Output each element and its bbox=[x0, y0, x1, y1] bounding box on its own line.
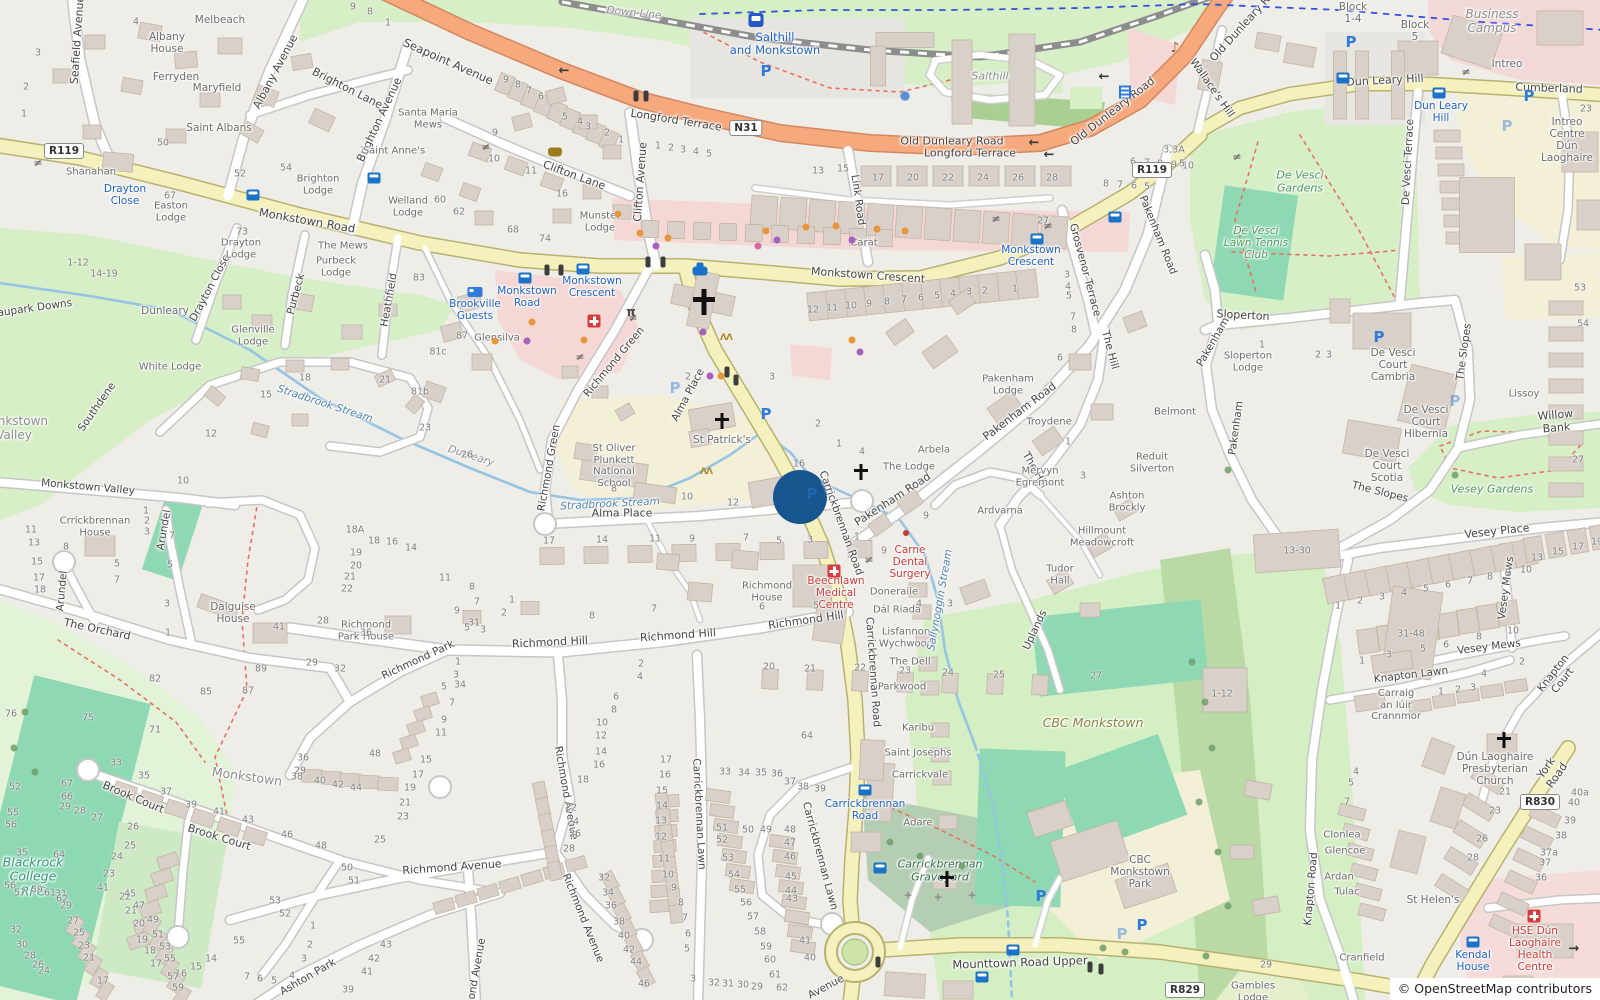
map-layers bbox=[0, 0, 1600, 1000]
building bbox=[713, 818, 738, 833]
building bbox=[916, 633, 934, 647]
building bbox=[385, 616, 411, 634]
building bbox=[1011, 213, 1039, 247]
building bbox=[1521, 826, 1554, 850]
building bbox=[812, 600, 847, 644]
building bbox=[1283, 43, 1316, 68]
building bbox=[806, 670, 823, 691]
building bbox=[499, 876, 522, 893]
building bbox=[1434, 130, 1460, 142]
building bbox=[1040, 215, 1068, 249]
building bbox=[302, 769, 323, 783]
road-clifton-avenue bbox=[630, 113, 656, 266]
building bbox=[1525, 244, 1561, 280]
map-attribution: © OpenStreetMap contributors bbox=[1390, 978, 1600, 1000]
building bbox=[1549, 353, 1583, 367]
building bbox=[667, 221, 685, 239]
building bbox=[1436, 147, 1462, 159]
building bbox=[121, 77, 143, 94]
building bbox=[823, 227, 841, 245]
building bbox=[613, 205, 631, 219]
route-badge-r119: R119 bbox=[1132, 162, 1172, 178]
building bbox=[540, 547, 564, 564]
building bbox=[1390, 830, 1426, 874]
building bbox=[378, 777, 399, 791]
building bbox=[919, 657, 937, 671]
building bbox=[1198, 59, 1223, 92]
building bbox=[1537, 11, 1583, 45]
building bbox=[922, 335, 958, 369]
building bbox=[793, 565, 831, 607]
building bbox=[772, 849, 797, 864]
building bbox=[669, 904, 683, 923]
building bbox=[393, 748, 412, 764]
building bbox=[909, 583, 927, 597]
building bbox=[1549, 405, 1583, 419]
building bbox=[933, 875, 957, 889]
building bbox=[321, 771, 342, 785]
building bbox=[521, 602, 539, 615]
area-rect bbox=[1070, 87, 1102, 109]
road-casing-richmond-hill bbox=[290, 612, 848, 652]
building bbox=[953, 209, 981, 243]
building bbox=[705, 788, 730, 803]
building bbox=[1016, 269, 1039, 299]
building bbox=[603, 145, 621, 159]
building bbox=[933, 771, 951, 785]
building bbox=[253, 623, 287, 643]
building bbox=[1549, 327, 1583, 341]
building bbox=[851, 671, 868, 692]
building bbox=[166, 129, 186, 143]
building bbox=[331, 358, 349, 370]
building bbox=[851, 832, 881, 852]
building bbox=[775, 864, 800, 879]
building bbox=[1330, 299, 1350, 323]
building bbox=[896, 672, 913, 693]
building bbox=[1480, 684, 1503, 699]
building bbox=[1476, 604, 1499, 631]
building bbox=[986, 674, 1003, 695]
building bbox=[562, 366, 578, 378]
building bbox=[943, 981, 973, 999]
building bbox=[342, 325, 362, 339]
osm-attribution-link[interactable]: © OpenStreetMap contributors bbox=[1398, 981, 1592, 996]
building bbox=[85, 536, 115, 556]
building bbox=[1456, 689, 1479, 704]
building bbox=[750, 195, 778, 229]
building bbox=[565, 855, 588, 872]
building bbox=[286, 360, 304, 372]
building bbox=[1513, 848, 1546, 872]
building bbox=[1589, 524, 1600, 551]
building bbox=[292, 414, 308, 426]
building bbox=[1438, 164, 1464, 176]
building bbox=[291, 53, 313, 70]
building bbox=[656, 553, 679, 571]
building bbox=[1549, 457, 1583, 471]
building bbox=[340, 773, 361, 787]
building bbox=[457, 291, 482, 312]
building bbox=[1422, 738, 1455, 774]
building bbox=[848, 540, 872, 557]
building bbox=[761, 669, 778, 690]
building bbox=[1460, 178, 1515, 253]
building bbox=[290, 292, 314, 312]
building bbox=[1523, 536, 1545, 563]
building bbox=[790, 939, 815, 954]
building bbox=[1392, 51, 1405, 119]
building bbox=[861, 166, 891, 186]
building bbox=[592, 386, 608, 398]
building bbox=[53, 69, 71, 83]
building bbox=[472, 354, 492, 370]
building bbox=[1203, 668, 1247, 712]
building bbox=[1444, 847, 1479, 876]
building bbox=[197, 594, 239, 621]
route-badge-r830: R830 bbox=[1520, 794, 1560, 810]
building bbox=[969, 166, 999, 186]
building bbox=[778, 879, 803, 894]
building bbox=[731, 550, 758, 570]
building bbox=[1005, 166, 1035, 186]
building bbox=[1408, 699, 1431, 714]
building bbox=[1255, 32, 1281, 52]
building bbox=[1549, 301, 1583, 315]
building bbox=[218, 38, 242, 54]
building bbox=[1009, 34, 1035, 126]
cul-de-sac bbox=[534, 513, 556, 535]
building bbox=[1545, 532, 1567, 559]
building bbox=[952, 40, 972, 124]
building bbox=[421, 162, 443, 181]
building bbox=[729, 878, 754, 893]
building bbox=[982, 211, 1010, 245]
building bbox=[781, 894, 806, 909]
building bbox=[933, 166, 963, 186]
building bbox=[960, 579, 991, 605]
building bbox=[628, 545, 652, 562]
building bbox=[463, 611, 481, 624]
building bbox=[689, 428, 711, 447]
building bbox=[687, 582, 712, 602]
building bbox=[1031, 675, 1048, 696]
building bbox=[1069, 354, 1091, 370]
building bbox=[886, 319, 915, 346]
building bbox=[421, 692, 440, 708]
building bbox=[797, 226, 815, 244]
building bbox=[931, 748, 949, 762]
building bbox=[521, 869, 544, 886]
building bbox=[407, 720, 426, 736]
cul-de-sac bbox=[167, 926, 189, 948]
building bbox=[174, 51, 197, 69]
cul-de-sac bbox=[77, 759, 99, 781]
building bbox=[1435, 874, 1470, 903]
cul-de-sac bbox=[53, 551, 75, 573]
building bbox=[1562, 132, 1598, 172]
route-badge-r119: R119 bbox=[44, 143, 84, 159]
building bbox=[1504, 679, 1527, 694]
building bbox=[511, 113, 532, 131]
building bbox=[359, 775, 380, 789]
map-canvas[interactable]: Seapoint AvenueLongford TerraceOld Dunle… bbox=[0, 0, 1600, 1000]
route-badge-r829: R829 bbox=[1165, 982, 1205, 998]
building bbox=[709, 803, 734, 818]
building bbox=[745, 224, 763, 242]
building bbox=[1496, 600, 1519, 627]
building bbox=[1398, 364, 1459, 432]
building bbox=[414, 706, 433, 722]
building bbox=[545, 87, 566, 105]
building bbox=[760, 542, 784, 559]
building bbox=[468, 142, 492, 162]
building bbox=[1113, 499, 1137, 521]
building bbox=[849, 228, 867, 246]
building bbox=[1080, 603, 1100, 617]
building bbox=[769, 834, 794, 849]
area-shops-small bbox=[790, 344, 832, 380]
building bbox=[1549, 483, 1583, 497]
building bbox=[1456, 608, 1479, 635]
building bbox=[875, 229, 893, 247]
building bbox=[895, 205, 923, 239]
building bbox=[583, 185, 601, 199]
building bbox=[574, 443, 598, 462]
building bbox=[921, 681, 939, 695]
building bbox=[725, 863, 750, 878]
building bbox=[1577, 200, 1600, 230]
building bbox=[83, 125, 101, 139]
building bbox=[1253, 529, 1340, 573]
building bbox=[1487, 734, 1517, 758]
building bbox=[440, 322, 463, 343]
building bbox=[871, 46, 886, 86]
building bbox=[1356, 51, 1369, 119]
building bbox=[1567, 528, 1589, 555]
building bbox=[931, 723, 949, 737]
building bbox=[913, 605, 931, 619]
building bbox=[719, 223, 737, 241]
building bbox=[379, 304, 397, 316]
building bbox=[102, 152, 133, 173]
building bbox=[540, 172, 564, 192]
building bbox=[859, 739, 885, 780]
building bbox=[1453, 820, 1488, 849]
building bbox=[1358, 903, 1386, 921]
building bbox=[584, 546, 608, 563]
cul-de-sac bbox=[429, 776, 451, 798]
building bbox=[504, 156, 528, 176]
building bbox=[1549, 431, 1583, 445]
building bbox=[1353, 313, 1411, 349]
building bbox=[897, 166, 927, 186]
building bbox=[641, 220, 659, 238]
building bbox=[1517, 924, 1573, 958]
location-marker[interactable] bbox=[773, 470, 827, 524]
building bbox=[400, 734, 419, 750]
building bbox=[1334, 51, 1347, 119]
building bbox=[309, 108, 336, 132]
building bbox=[876, 33, 934, 48]
building bbox=[1342, 420, 1401, 463]
building bbox=[1356, 628, 1379, 655]
building bbox=[939, 815, 957, 829]
building bbox=[579, 115, 597, 129]
building bbox=[200, 93, 220, 107]
building bbox=[1549, 379, 1583, 393]
building bbox=[884, 972, 926, 999]
building bbox=[1230, 845, 1254, 859]
building bbox=[1123, 311, 1147, 333]
building bbox=[553, 209, 571, 223]
building bbox=[240, 367, 260, 382]
building bbox=[804, 541, 828, 558]
building bbox=[85, 35, 105, 49]
building bbox=[252, 315, 272, 329]
building bbox=[941, 673, 958, 694]
building bbox=[459, 182, 481, 201]
building bbox=[223, 295, 241, 309]
road-tudor-lane bbox=[1040, 495, 1100, 575]
building bbox=[787, 924, 812, 939]
building bbox=[771, 225, 789, 243]
building bbox=[1091, 404, 1113, 420]
building bbox=[924, 207, 952, 241]
roundabout-island bbox=[842, 939, 868, 965]
building bbox=[138, 22, 162, 42]
building bbox=[475, 211, 493, 225]
route-badge-n31: N31 bbox=[729, 120, 762, 136]
building bbox=[717, 833, 742, 848]
cul-de-sac bbox=[851, 490, 873, 512]
building bbox=[693, 222, 711, 240]
building bbox=[1041, 166, 1071, 186]
building bbox=[1432, 694, 1455, 709]
building bbox=[251, 422, 270, 438]
building bbox=[721, 848, 746, 863]
